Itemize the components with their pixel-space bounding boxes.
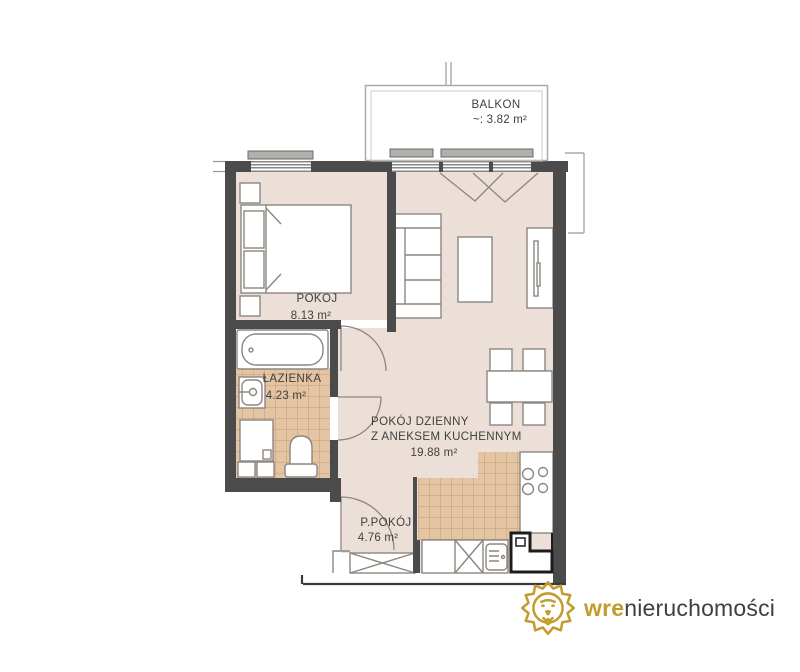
entry-step [333, 551, 350, 573]
kitchen-tiles-main [418, 478, 520, 540]
wall-partition [387, 172, 396, 332]
bathtub-faucet [249, 348, 253, 352]
hall-floor [338, 328, 393, 477]
bedroom-area: 8.13 m² [291, 310, 331, 322]
living-room-label-line2: Z ANEKSEM KUCHENNYM [371, 431, 522, 443]
toilet-bowl [290, 436, 312, 466]
hallway-label: P.POKÓJ [360, 516, 411, 529]
dining-chair-4 [523, 403, 545, 425]
window-post [247, 161, 251, 172]
pillow-2 [244, 251, 264, 288]
wall-hall-kitchen-thin [413, 477, 417, 541]
agency-logo: wrenieruchomości [519, 580, 775, 636]
toilet-base [285, 464, 317, 477]
window-post [489, 161, 493, 172]
window-sill-balcony-2 [441, 149, 533, 157]
exterior-line-left [213, 162, 225, 172]
floor-plan-page: BALKON ~: 3.82 m² POKOJ 8.13 m² ŁAZIENKA… [0, 0, 800, 672]
sofa [391, 214, 441, 318]
lion-eye-right [551, 604, 555, 607]
pillow-1 [244, 211, 264, 248]
bath-cabinet-1 [238, 462, 255, 477]
wall-bath-right-bottom [330, 440, 338, 478]
window-bedroom-glazing [249, 162, 313, 171]
kitchen-tiles-upper [478, 452, 520, 478]
wall-step [330, 492, 341, 502]
wall-bath-right-top [330, 328, 338, 397]
wall-hall-kitchen [413, 540, 420, 573]
wall-right [553, 161, 566, 584]
window-post [531, 161, 535, 172]
floor-plan: BALKON ~: 3.82 m² POKOJ 8.13 m² ŁAZIENKA… [0, 0, 800, 672]
wall-bottom-left [225, 478, 341, 492]
lion-mane [522, 582, 574, 634]
dining-table [487, 371, 552, 402]
hallway-area: 4.76 m² [358, 532, 398, 544]
lion-brow [541, 600, 554, 602]
balcony-label: BALKON [471, 99, 520, 111]
bathroom-area: 4.23 m² [266, 390, 306, 402]
nightstand-bottom [240, 296, 260, 316]
window-post [311, 161, 315, 172]
dining-chair-1 [490, 349, 512, 371]
bathroom-label: ŁAZIENKA [263, 373, 322, 385]
balcony-divider-lines [446, 62, 451, 85]
sink-drain [502, 556, 505, 559]
brand-secondary: nieruchomości [624, 595, 775, 621]
washing-machine-detail [263, 450, 271, 459]
balcony-area: ~: 3.82 m² [473, 114, 527, 126]
window-post [388, 161, 392, 172]
wall-left [225, 161, 236, 492]
lion-chin [546, 623, 549, 624]
brand-primary: wre [584, 595, 624, 621]
lion-eye-left [541, 604, 545, 607]
window-balcony-glazing [390, 162, 533, 171]
lion-mouth [544, 618, 553, 620]
agency-name: wrenieruchomości [584, 597, 775, 620]
coffee-table [458, 237, 492, 302]
wall-top-mid [313, 161, 390, 172]
kitchen-counter-right [520, 452, 553, 533]
bedroom-label: POKOJ [297, 293, 338, 305]
lion-nose [545, 610, 552, 615]
living-room-label-line1: POKÓJ DZIENNY [371, 415, 469, 428]
window-sill-bedroom [248, 151, 313, 159]
living-room-area: 19.88 m² [411, 447, 458, 459]
nightstand-top [240, 183, 260, 203]
tv-stand [537, 263, 540, 286]
bath-cabinet-2 [257, 462, 274, 477]
dining-chair-3 [490, 403, 512, 425]
lion-icon [519, 580, 577, 636]
window-sill-balcony-1 [390, 149, 433, 157]
window-post [439, 161, 443, 172]
dining-chair-2 [523, 349, 545, 371]
